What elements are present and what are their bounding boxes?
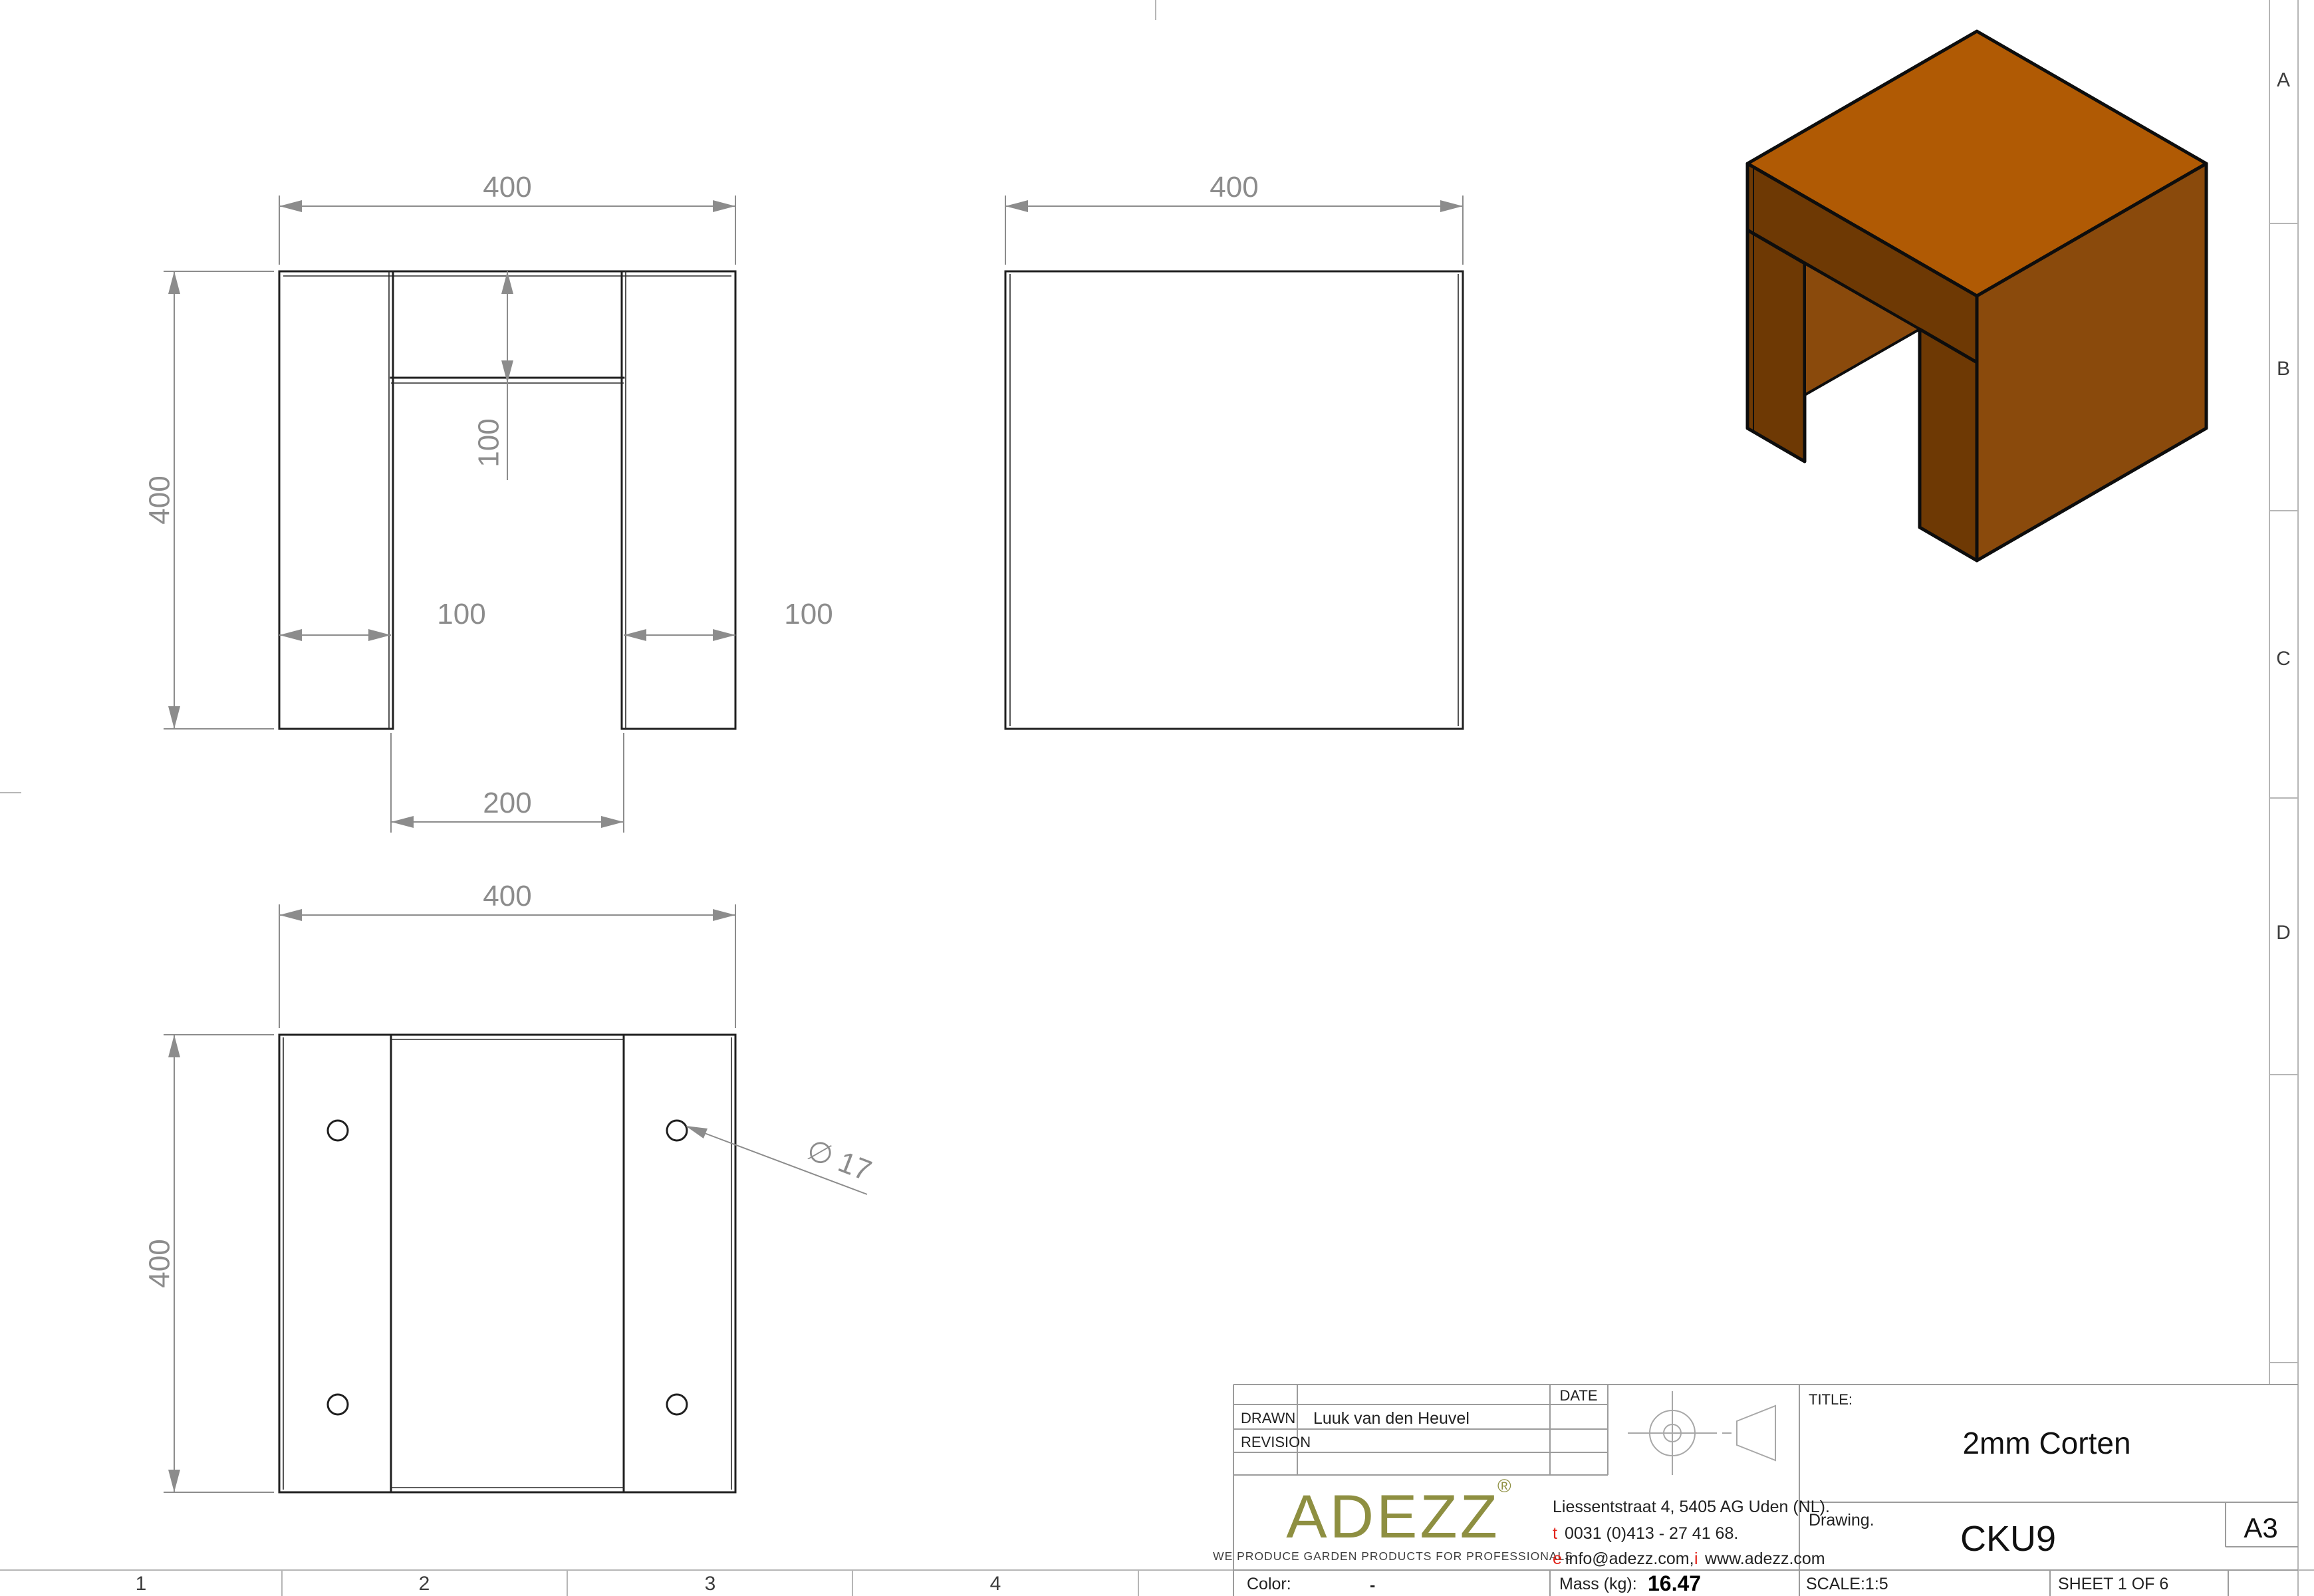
side-view (1005, 271, 1463, 729)
side-view-dimensions: 400 (1005, 171, 1463, 265)
zone-number-2: 2 (419, 1573, 430, 1595)
color-value: - (1370, 1576, 1375, 1595)
scale-value: SCALE:1:5 (1806, 1575, 1888, 1593)
bottom-dim-height: 400 (144, 1239, 176, 1287)
paper-size: A3 (2244, 1512, 2277, 1543)
anchor-hole (667, 1121, 687, 1140)
iso-front-right-leg (1920, 329, 1977, 561)
front-dim-top-depth: 100 (473, 418, 505, 467)
date-label: DATE (1559, 1387, 1597, 1404)
zone-number-3: 3 (705, 1573, 716, 1595)
front-dim-leg-right: 100 (784, 598, 833, 630)
logo-tagline: WE PRODUCE GARDEN PRODUCTS FOR PROFESSIO… (1213, 1549, 1573, 1563)
title-value: 2mm Corten (1962, 1426, 2130, 1460)
hole-diameter-label: ∅ 17 (803, 1133, 876, 1187)
front-dim-leg-left: 100 (437, 598, 485, 630)
zone-letter-b: B (2277, 358, 2290, 380)
zone-letter-c: C (2276, 648, 2291, 670)
title-block: DATE DRAWN Luuk van den Heuvel REVISION … (1213, 1385, 2298, 1596)
anchor-hole (328, 1395, 348, 1414)
phone-number: 0031 (0)413 - 27 41 68. (1565, 1524, 1738, 1543)
drawn-label: DRAWN (1241, 1410, 1295, 1426)
registered-mark-icon: ® (1497, 1476, 1511, 1496)
front-dim-height: 400 (144, 475, 176, 524)
zone-number-4: 4 (990, 1573, 1001, 1595)
mass-value: 16.47 (1648, 1571, 1701, 1595)
zone-letter-d: D (2276, 922, 2291, 944)
projection-symbol-icon (1628, 1391, 1775, 1475)
phone-prefix: t (1553, 1524, 1557, 1543)
color-label: Color: (1247, 1575, 1291, 1593)
iso-front-left-leg (1747, 230, 1805, 462)
address-line: Liessentstraat 4, 5405 AG Uden (NL). (1553, 1498, 1830, 1516)
anchor-hole (667, 1395, 687, 1414)
sheet-value: SHEET 1 OF 6 (2058, 1575, 2168, 1593)
revision-label: REVISION (1241, 1434, 1311, 1450)
front-dim-width: 400 (483, 171, 531, 203)
drawing-label: Drawing. (1809, 1511, 1874, 1529)
email-prefix: e (1553, 1549, 1562, 1568)
front-dim-opening: 200 (483, 787, 531, 819)
adezz-logo: ADEZZ (1286, 1483, 1500, 1551)
web-prefix: i (1694, 1549, 1698, 1568)
drawn-value: Luuk van den Heuvel (1313, 1409, 1470, 1428)
zone-number-1: 1 (136, 1573, 147, 1595)
drawing-number: CKU9 (1960, 1519, 2056, 1559)
side-dim-width: 400 (1210, 171, 1258, 203)
title-label: TITLE: (1809, 1391, 1853, 1408)
bottom-view-dimensions: 400 400 ∅ 17 (144, 880, 876, 1492)
bottom-view (279, 1035, 735, 1492)
bottom-dim-width: 400 (483, 880, 531, 912)
web-address: www.adezz.com (1704, 1549, 1825, 1568)
drawing-sheet: A B C D 1 2 3 4 400 400 (0, 0, 2314, 1596)
anchor-hole (328, 1121, 348, 1140)
email-address: info@adezz.com, (1565, 1549, 1694, 1568)
front-view-dimensions: 400 400 100 100 100 200 (144, 171, 833, 833)
zone-letter-a: A (2277, 69, 2290, 91)
isometric-view (1747, 31, 2206, 561)
mass-label: Mass (kg): (1559, 1575, 1637, 1593)
